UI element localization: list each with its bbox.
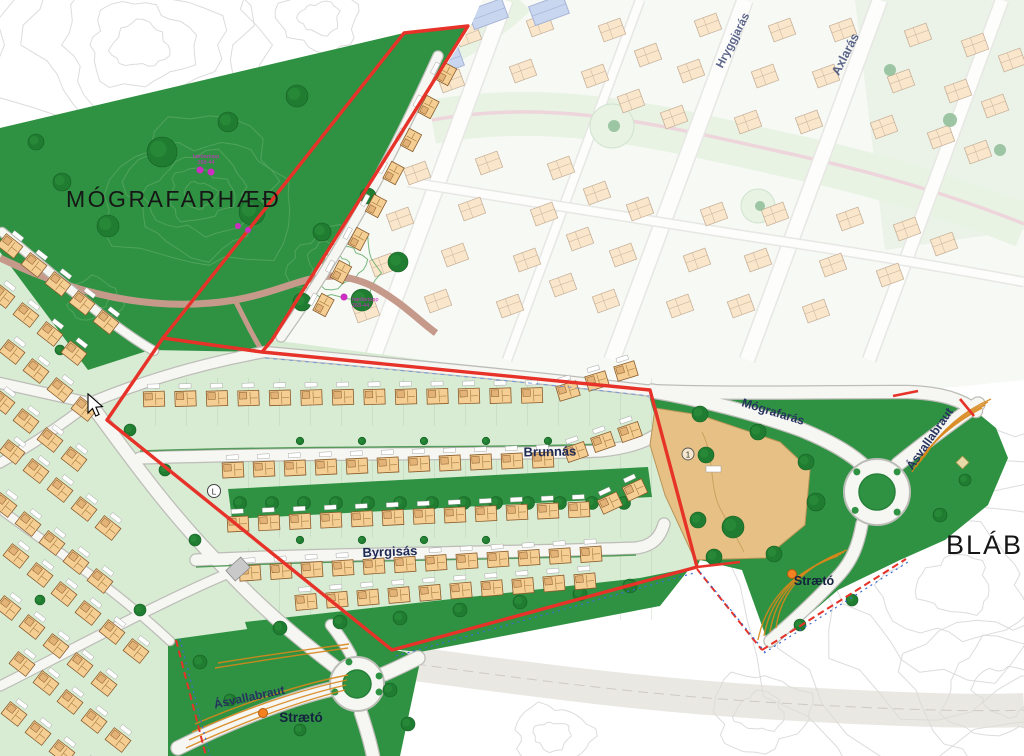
field-number: 1 (686, 451, 691, 460)
zoning-plan-map[interactable]: L 1 hæðartopp 268-44 hæðartopp 268-44 MÓ… (0, 0, 1024, 756)
survey-label2-line1: hæðartopp (352, 296, 379, 303)
survey-label2-line2: 268-44 (352, 303, 369, 309)
poi-label-straeto-right: Strætó (794, 574, 835, 588)
survey-label-line1: hæðartopp (193, 153, 220, 160)
poi-label-straeto-bottom: Strætó (279, 710, 323, 725)
street-label-brunnas: Brunnás (523, 444, 576, 460)
street-label-byrgisas: Byrgisás (362, 543, 417, 560)
bus-stop-dot-bottom (259, 709, 268, 718)
parking-symbol-letter: L (212, 487, 217, 497)
area-label-mografarhaed: MÓGRAFARHÆÐ (66, 186, 281, 212)
survey-label-line2: 268-44 (197, 160, 214, 166)
screenshot-stage: L 1 hæðartopp 268-44 hæðartopp 268-44 MÓ… (0, 0, 1024, 756)
area-label-blaberg: BLÁBER (946, 530, 1024, 560)
